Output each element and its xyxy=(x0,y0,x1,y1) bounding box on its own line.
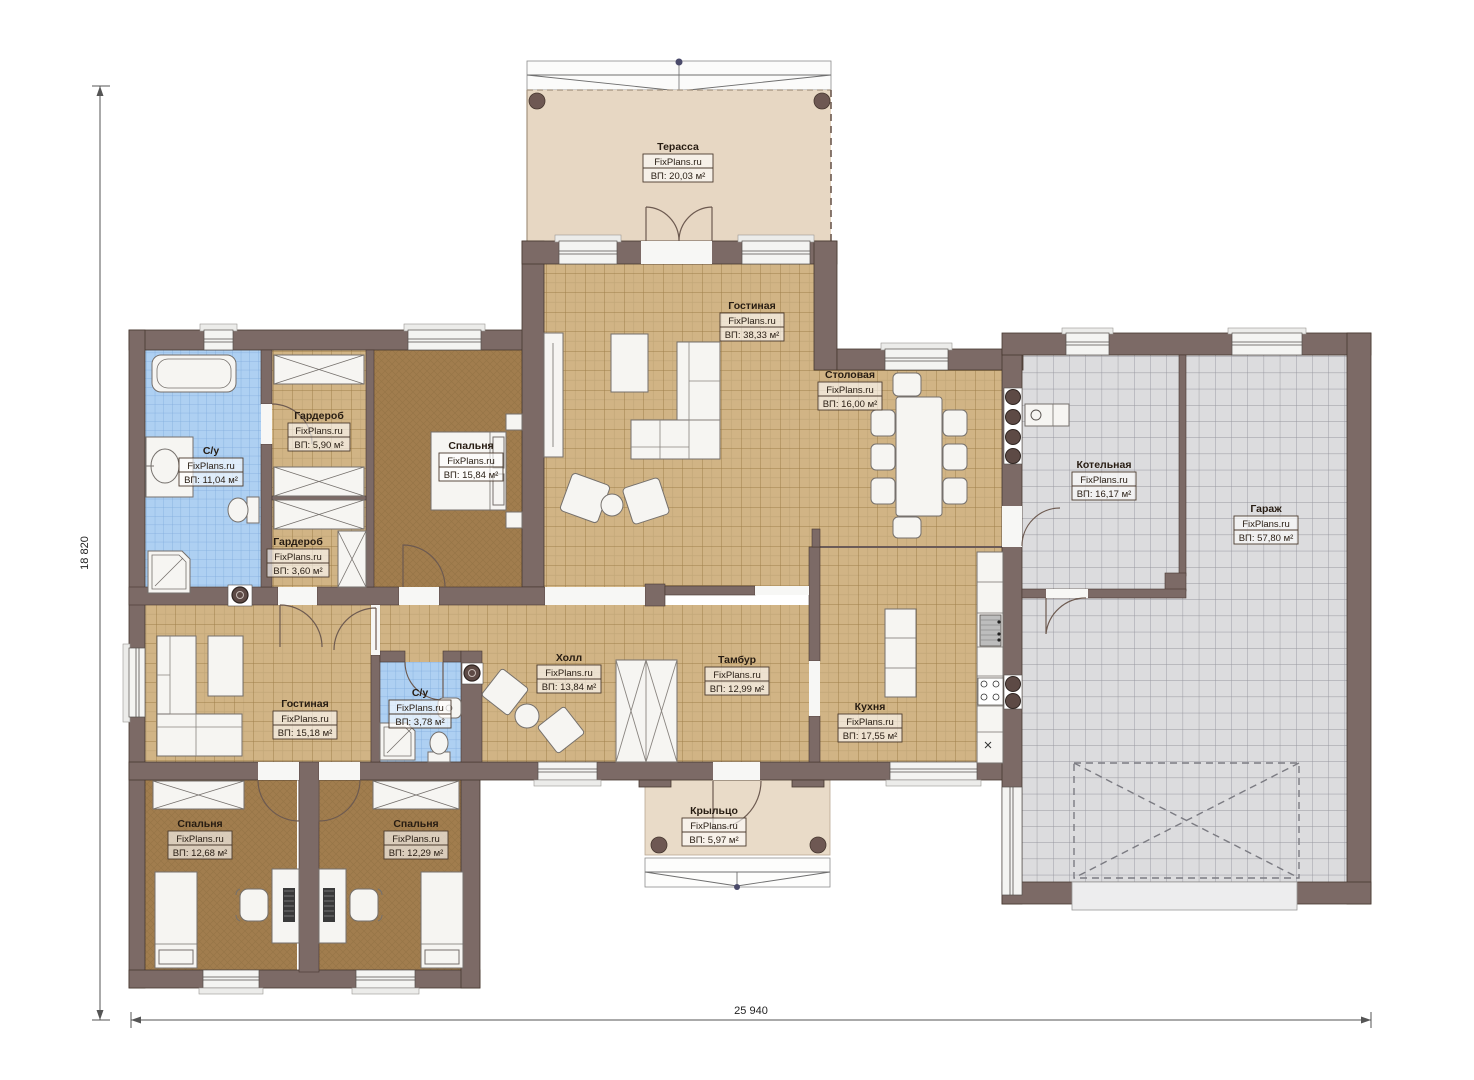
svg-text:ВП: 12,29 м²: ВП: 12,29 м² xyxy=(389,848,444,859)
svg-text:ВП: 57,80 м²: ВП: 57,80 м² xyxy=(1239,533,1294,544)
svg-text:FixPlans.ru: FixPlans.ru xyxy=(1242,519,1290,530)
svg-text:ВП: 16,17 м²: ВП: 16,17 м² xyxy=(1077,489,1132,500)
svg-text:ВП: 12,68 м²: ВП: 12,68 м² xyxy=(173,848,228,859)
svg-text:FixPlans.ru: FixPlans.ru xyxy=(545,668,593,679)
svg-text:FixPlans.ru: FixPlans.ru xyxy=(396,703,444,714)
svg-text:С/у: С/у xyxy=(203,445,220,457)
svg-text:Гардероб: Гардероб xyxy=(294,410,344,422)
svg-text:С/у: С/у xyxy=(412,687,429,699)
svg-text:ВП: 15,18 м²: ВП: 15,18 м² xyxy=(278,728,333,739)
svg-text:FixPlans.ru: FixPlans.ru xyxy=(447,456,495,467)
svg-text:FixPlans.ru: FixPlans.ru xyxy=(274,552,322,563)
svg-text:ВП: 13,84 м²: ВП: 13,84 м² xyxy=(542,682,597,693)
svg-text:FixPlans.ru: FixPlans.ru xyxy=(826,385,874,396)
svg-text:25 940: 25 940 xyxy=(734,1005,768,1017)
svg-text:Крыльцо: Крыльцо xyxy=(690,805,738,817)
svg-text:ВП: 3,60 м²: ВП: 3,60 м² xyxy=(273,566,322,577)
svg-text:18 820: 18 820 xyxy=(79,536,91,570)
svg-text:FixPlans.ru: FixPlans.ru xyxy=(176,834,224,845)
svg-text:FixPlans.ru: FixPlans.ru xyxy=(654,157,702,168)
svg-text:Тамбур: Тамбур xyxy=(718,654,756,666)
svg-text:Гараж: Гараж xyxy=(1250,503,1282,515)
svg-text:Терасса: Терасса xyxy=(657,141,699,153)
svg-text:ВП: 17,55 м²: ВП: 17,55 м² xyxy=(843,731,898,742)
svg-text:FixPlans.ru: FixPlans.ru xyxy=(1080,475,1128,486)
svg-text:ВП: 5,97 м²: ВП: 5,97 м² xyxy=(689,835,738,846)
svg-text:Столовая: Столовая xyxy=(825,369,875,381)
svg-text:Спальня: Спальня xyxy=(448,440,493,452)
svg-text:FixPlans.ru: FixPlans.ru xyxy=(295,426,343,437)
svg-text:FixPlans.ru: FixPlans.ru xyxy=(392,834,440,845)
svg-text:ВП: 16,00 м²: ВП: 16,00 м² xyxy=(823,399,878,410)
svg-text:Кухня: Кухня xyxy=(855,701,886,713)
svg-text:ВП: 20,03 м²: ВП: 20,03 м² xyxy=(651,171,706,182)
svg-text:Спальня: Спальня xyxy=(393,818,438,830)
svg-text:ВП: 12,99 м²: ВП: 12,99 м² xyxy=(710,684,765,695)
svg-text:FixPlans.ru: FixPlans.ru xyxy=(713,670,761,681)
svg-text:ВП: 38,33 м²: ВП: 38,33 м² xyxy=(725,330,780,341)
svg-text:Котельная: Котельная xyxy=(1077,459,1132,471)
svg-text:Гардероб: Гардероб xyxy=(273,536,323,548)
svg-text:FixPlans.ru: FixPlans.ru xyxy=(690,821,738,832)
svg-text:Гостиная: Гостиная xyxy=(281,698,328,710)
svg-text:FixPlans.ru: FixPlans.ru xyxy=(281,714,329,725)
svg-text:ВП: 11,04 м²: ВП: 11,04 м² xyxy=(184,475,238,486)
svg-text:Гостиная: Гостиная xyxy=(728,300,775,312)
svg-text:ВП: 5,90 м²: ВП: 5,90 м² xyxy=(294,440,343,451)
svg-text:FixPlans.ru: FixPlans.ru xyxy=(728,316,776,327)
svg-text:FixPlans.ru: FixPlans.ru xyxy=(846,717,894,728)
svg-text:Спальня: Спальня xyxy=(177,818,222,830)
svg-text:ВП: 3,78 м²: ВП: 3,78 м² xyxy=(395,717,444,728)
svg-text:FixPlans.ru: FixPlans.ru xyxy=(187,461,235,472)
svg-text:Холл: Холл xyxy=(556,652,582,664)
svg-text:ВП: 15,84 м²: ВП: 15,84 м² xyxy=(444,470,499,481)
